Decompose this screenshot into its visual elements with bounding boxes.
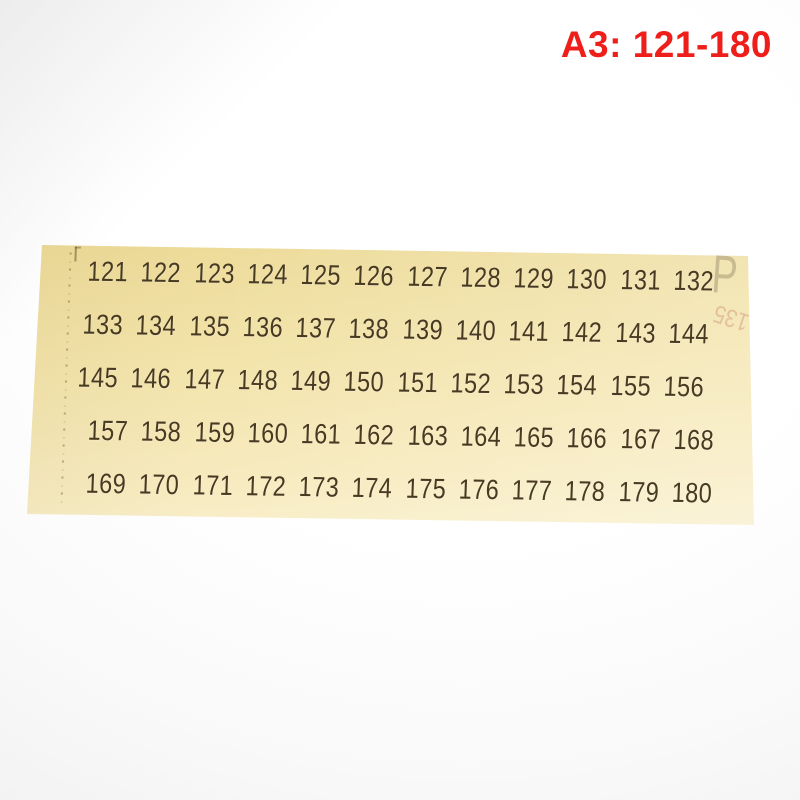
- sticker-number: 151: [397, 366, 435, 399]
- sticker-number: 152: [450, 367, 488, 400]
- sticker-number: 122: [140, 256, 178, 289]
- sticker-number: 169: [85, 467, 123, 500]
- sticker-number: 172: [245, 470, 283, 503]
- number-grid: 121 122 123 124 125 126 127 128 129 130 …: [32, 244, 748, 526]
- sticker-number: 127: [407, 260, 445, 293]
- sticker-number: 166: [566, 422, 604, 455]
- sticker-number: 157: [87, 414, 125, 447]
- sticker-number: 123: [193, 257, 231, 290]
- sticker-number: 178: [565, 475, 603, 508]
- sticker-number: 143: [615, 317, 653, 350]
- sticker-number: 145: [77, 361, 115, 394]
- range-label: A3: 121-180: [561, 24, 772, 66]
- sticker-number: 135: [189, 310, 227, 343]
- sticker-number: 149: [290, 364, 328, 397]
- sticker-number: 146: [130, 362, 168, 395]
- sticker-number: 174: [351, 471, 389, 504]
- sticker-number: 154: [556, 369, 594, 402]
- sticker-number: 129: [513, 262, 551, 295]
- sticker-number: 176: [458, 473, 496, 506]
- sticker-number: 164: [460, 420, 498, 453]
- sticker-number: 156: [663, 370, 701, 403]
- sticker-number: 167: [620, 423, 658, 456]
- sticker-number: 131: [620, 264, 658, 297]
- sticker-number: 175: [405, 472, 443, 505]
- sticker-number: 134: [135, 309, 173, 342]
- sticker-number: 171: [192, 469, 230, 502]
- sticker-number: 150: [343, 365, 381, 398]
- sticker-number: 168: [673, 423, 711, 456]
- sticker-number: 159: [194, 416, 232, 449]
- sticker-number: 155: [610, 369, 648, 402]
- sticker-number: 141: [508, 315, 546, 348]
- sticker-number: 138: [348, 312, 386, 345]
- sticker-number: 177: [511, 474, 549, 507]
- sticker-number: 173: [298, 471, 336, 504]
- sticker-row: 145 146 147 148 149 150 151 152 153 154 …: [24, 350, 732, 414]
- pencil-registration-mark: P: [710, 244, 740, 307]
- sticker-number: 161: [300, 418, 338, 451]
- sticker-number: 142: [561, 316, 599, 349]
- sticker-number: 133: [82, 308, 120, 341]
- sticker-number: 148: [237, 364, 275, 397]
- sticker-number: 130: [566, 263, 604, 296]
- sticker-number: 136: [242, 311, 280, 344]
- sticker-number: 158: [140, 415, 178, 448]
- sticker-number: 140: [455, 314, 493, 347]
- sticker-number: 160: [247, 417, 285, 450]
- sticker-number: 132: [673, 264, 711, 297]
- product-photo: A3: 121-180 121 122 123 124 125 126 127 …: [0, 0, 800, 800]
- sticker-number: 124: [247, 258, 285, 291]
- sticker-number: 163: [407, 419, 445, 452]
- sticker-number: 180: [671, 476, 709, 509]
- sticker-number: 139: [402, 313, 440, 346]
- sticker-number: 137: [295, 312, 333, 345]
- sticker-number: 126: [353, 259, 391, 292]
- sticker-number: 128: [460, 261, 498, 294]
- sticker-number: 144: [668, 317, 706, 350]
- sticker-number: 153: [503, 368, 541, 401]
- sticker-number: 147: [184, 363, 222, 396]
- sticker-row: 169 170 171 172 173 174 175 176 177 178 …: [32, 456, 740, 520]
- sticker-number: 179: [618, 476, 656, 509]
- sticker-number: 125: [300, 259, 338, 292]
- sticker-number: 170: [138, 468, 176, 501]
- sticker-number: 162: [353, 418, 391, 451]
- sticker-number: 165: [513, 421, 551, 454]
- sticker-number: 121: [87, 255, 125, 288]
